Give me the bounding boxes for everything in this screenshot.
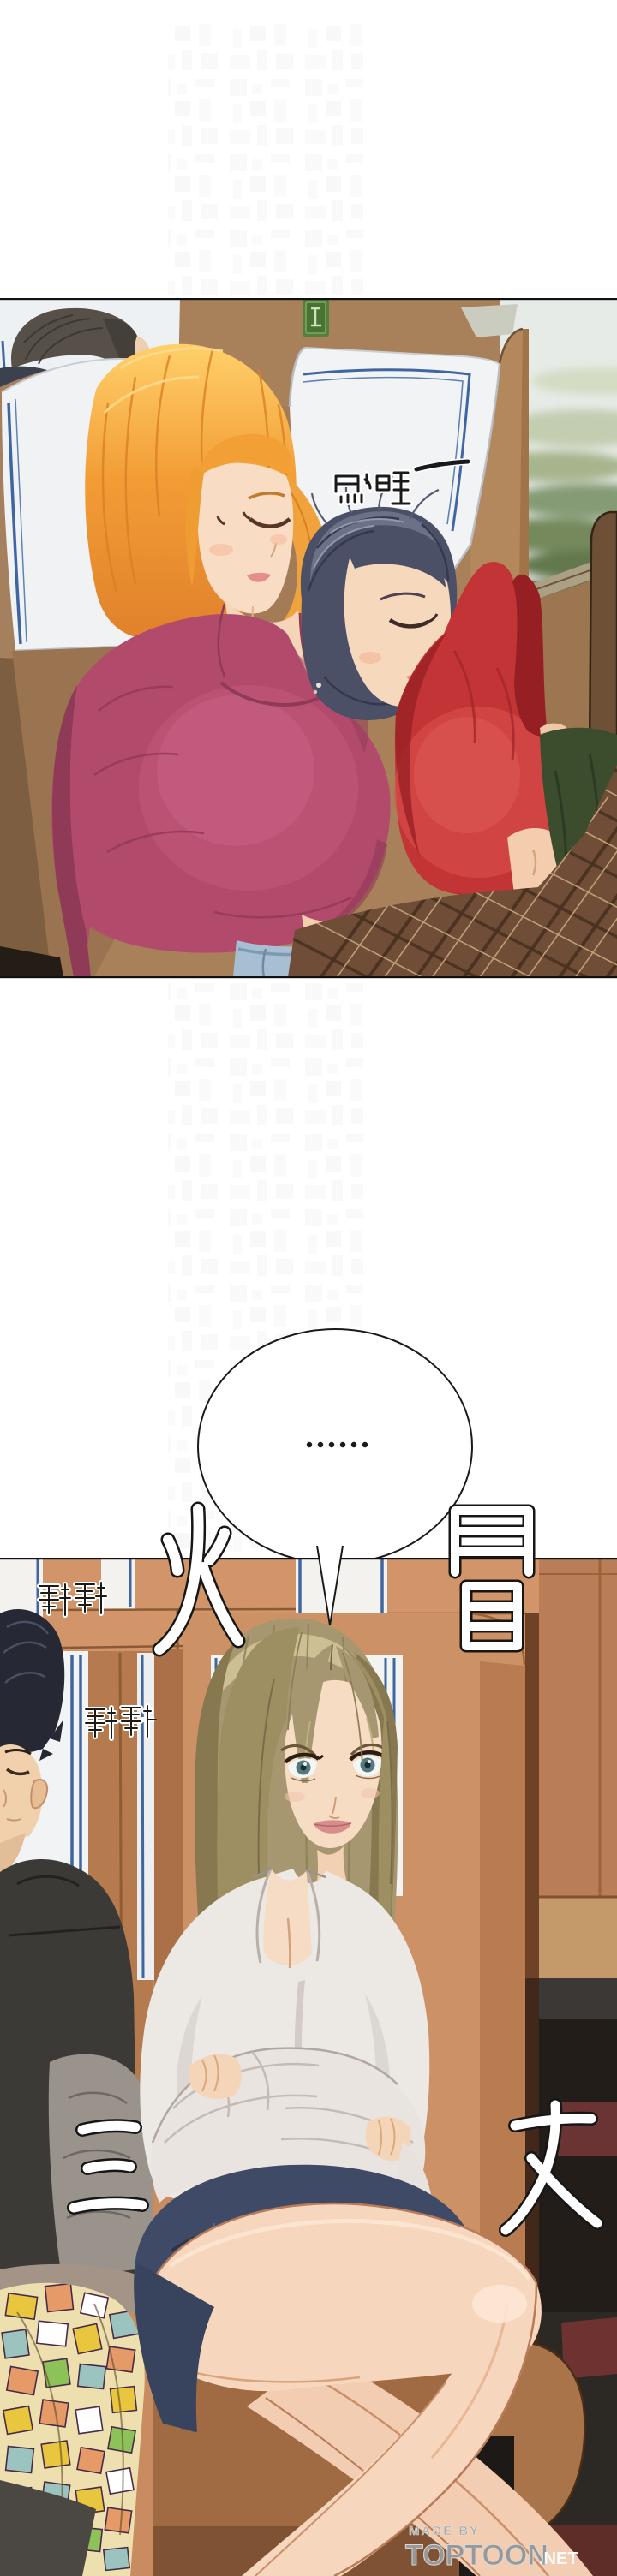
svg-text:MADE BY: MADE BY [409,2524,480,2538]
svg-text:.NET: .NET [539,2549,578,2568]
svg-text:TOPTOON: TOPTOON [405,2539,548,2572]
